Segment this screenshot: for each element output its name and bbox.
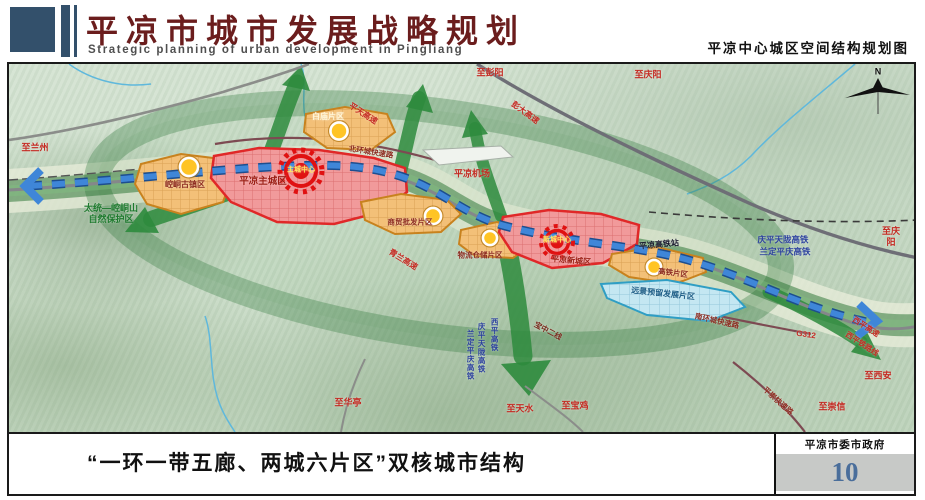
page-subtitle-en: Strategic planning of urban development …	[88, 44, 463, 56]
agency-name: 平凉市委市政府	[776, 434, 914, 452]
planning-map: 至兰州太统—崆峒山 自然保护区崆峒古镇区平凉主城区主城中心白庙片区平天高速至彭阳…	[9, 64, 914, 434]
node-kongtong	[178, 156, 200, 178]
node-shangmao	[423, 206, 443, 226]
node-wuliu	[481, 229, 499, 247]
footer: “一环一带五廊、两城六片区”双核城市结构 平凉市委市政府 10	[9, 434, 914, 494]
road-pingchong	[733, 362, 805, 432]
compass-rose	[845, 78, 910, 114]
map-subtitle: 平凉中心城区空间结构规划图	[708, 37, 910, 57]
map-graphics	[9, 64, 914, 432]
node-baimiao	[329, 121, 350, 142]
node-gaotie	[645, 258, 663, 276]
header: 平凉市城市发展战略规划 Strategic planning of urban …	[0, 0, 925, 62]
structure-caption: “一环一带五廊、两城六片区”双核城市结构	[87, 434, 526, 494]
logo-bar-thin	[74, 5, 77, 57]
logo-bar	[61, 5, 70, 57]
page-number-box: 平凉市委市政府 10	[774, 434, 914, 494]
content-frame: 至兰州太统—崆峒山 自然保护区崆峒古镇区平凉主城区主城中心白庙片区平天高速至彭阳…	[7, 62, 916, 496]
road-to-huating	[341, 359, 365, 432]
page-number: 10	[776, 454, 914, 491]
page: 平凉市城市发展战略规划 Strategic planning of urban …	[0, 0, 925, 500]
road-to-baoji	[525, 386, 583, 432]
logo-block	[10, 7, 55, 52]
